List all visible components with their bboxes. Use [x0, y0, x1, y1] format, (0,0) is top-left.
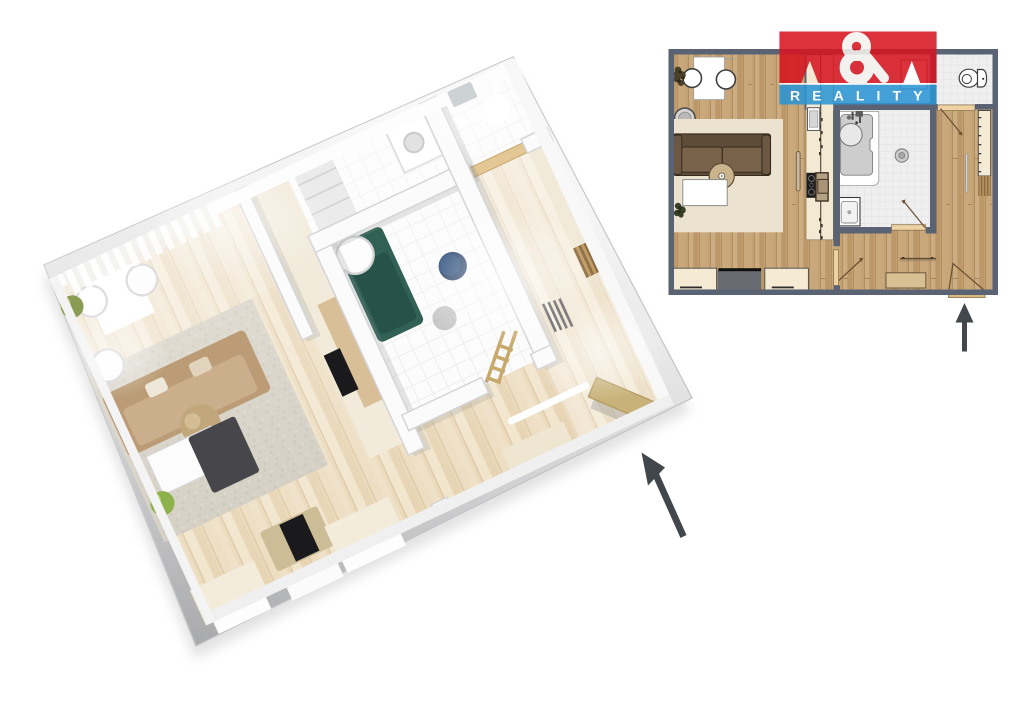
svg-text:REALITY: REALITY [790, 87, 935, 103]
